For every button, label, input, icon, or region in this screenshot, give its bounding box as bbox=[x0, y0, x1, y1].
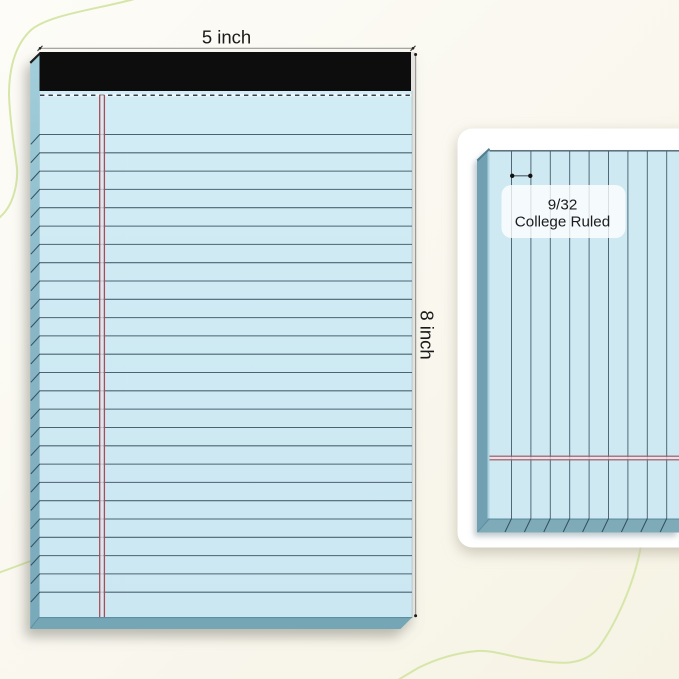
svg-text:5 inch: 5 inch bbox=[202, 27, 251, 48]
svg-text:College Ruled: College Ruled bbox=[515, 214, 610, 231]
svg-text:9/32: 9/32 bbox=[548, 197, 578, 214]
svg-text:8 inch: 8 inch bbox=[417, 310, 438, 359]
